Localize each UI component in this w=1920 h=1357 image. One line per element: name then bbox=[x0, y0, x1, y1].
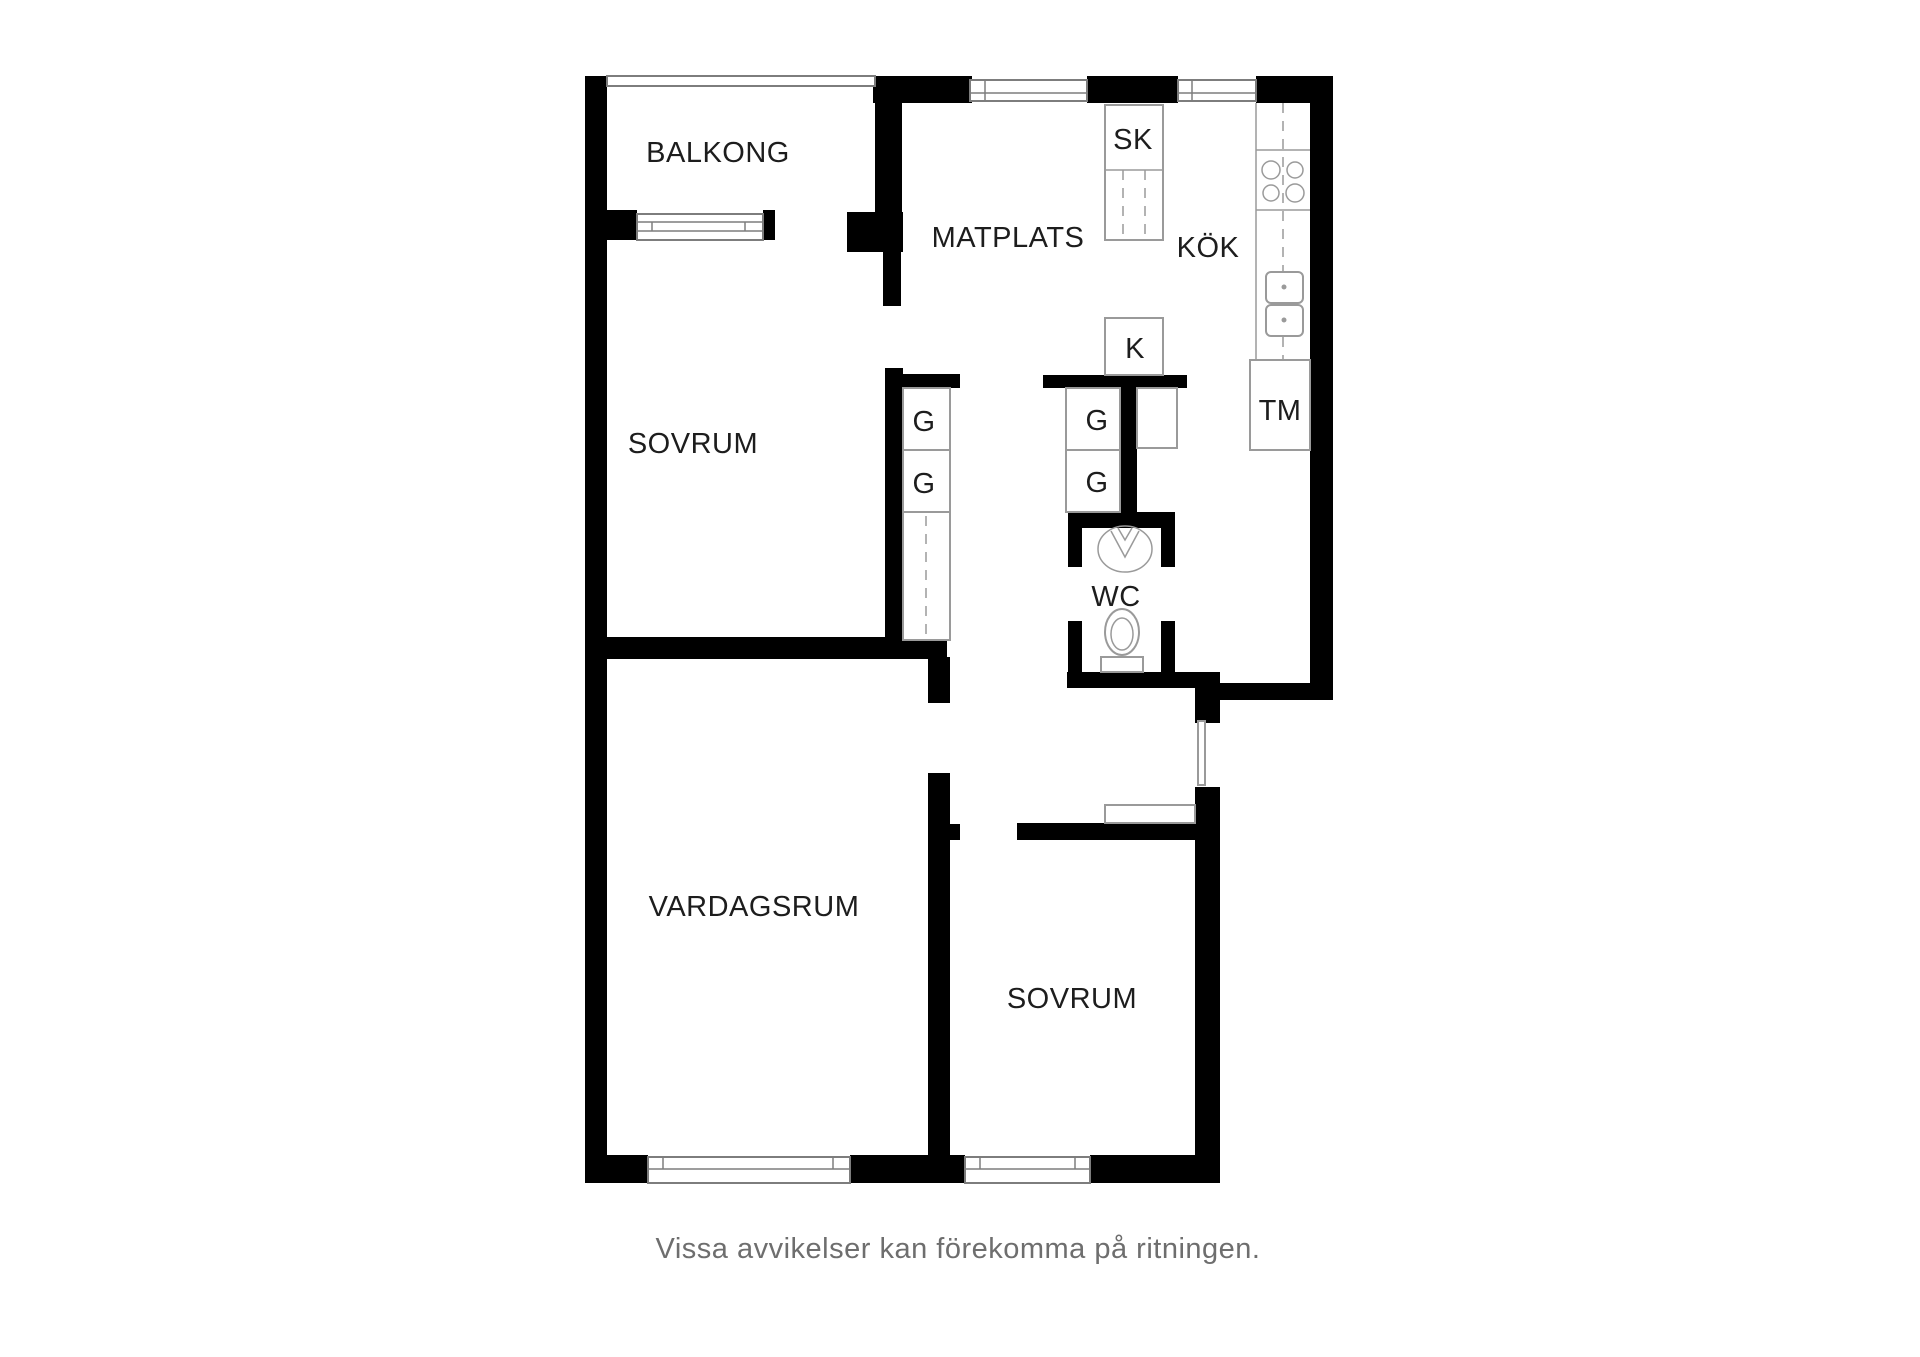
window-top-2 bbox=[1178, 80, 1256, 101]
stove-burner-icon bbox=[1263, 185, 1279, 201]
wall-sovrum2-north bbox=[1017, 823, 1195, 840]
wardrobe-hall-open-cell bbox=[1137, 388, 1177, 448]
hall-shelf bbox=[1105, 805, 1195, 823]
toilet-tank bbox=[1101, 657, 1143, 672]
wall-bottom-segment-b bbox=[850, 1155, 965, 1183]
sink-drain-2 bbox=[1282, 318, 1287, 323]
wall-vardagsrum-east-upper bbox=[928, 657, 950, 703]
stove-burner-icon bbox=[1286, 184, 1304, 202]
wall-wc-east-lower bbox=[1161, 621, 1175, 673]
wall-closet2-cap bbox=[1043, 375, 1187, 388]
toilet-bowl bbox=[1105, 609, 1139, 655]
wall-bottom-corner bbox=[1090, 1155, 1220, 1183]
room-label-matplats: MATPLATS bbox=[932, 222, 1085, 254]
room-label-wc: WC bbox=[1091, 581, 1140, 613]
fixture-label-sk: SK bbox=[1113, 124, 1153, 156]
stove-burner-icon bbox=[1287, 162, 1303, 178]
room-label-sovrum-bottom: SOVRUM bbox=[1007, 983, 1137, 1015]
sink-drain-1 bbox=[1282, 285, 1287, 290]
fixture-label-k: K bbox=[1125, 333, 1145, 365]
fixture-label-g-sovrum-1: G bbox=[912, 406, 935, 438]
wall-wc-east-upper bbox=[1161, 528, 1175, 567]
toilet bbox=[1101, 609, 1143, 672]
wall-sovrum-east-stub bbox=[883, 252, 901, 306]
wall-balcony-door-block bbox=[847, 212, 903, 252]
window-balcony bbox=[637, 214, 763, 240]
room-label-kok: KÖK bbox=[1177, 232, 1240, 264]
fixture-label-g-hall-2: G bbox=[1085, 467, 1108, 499]
room-label-sovrum-top: SOVRUM bbox=[628, 428, 758, 460]
wall-top-segment-b bbox=[1087, 76, 1178, 103]
window-bottom-2 bbox=[965, 1157, 1090, 1183]
wall-vardagsrum-east-lower bbox=[928, 773, 950, 1155]
washbasin-tap bbox=[1118, 528, 1132, 540]
wall-outer-left bbox=[585, 76, 607, 1183]
kitchen-sink bbox=[1266, 272, 1303, 336]
entrance-door-leaf bbox=[1198, 721, 1205, 785]
disclaimer-caption: Vissa avvikelser kan förekomma på ritnin… bbox=[656, 1233, 1261, 1265]
wall-balcony-window-block bbox=[585, 210, 637, 240]
stove-burner-icon bbox=[1262, 161, 1280, 179]
wall-wc-west-upper bbox=[1068, 528, 1082, 567]
washbasin-bowl bbox=[1098, 526, 1152, 572]
window-top-1 bbox=[970, 80, 1087, 101]
wall-entry-lower bbox=[1195, 787, 1220, 1183]
fixture-label-tm: TM bbox=[1259, 395, 1302, 427]
wall-sovrum2-door-nub bbox=[948, 824, 960, 840]
fixture-label-g-hall-1: G bbox=[1085, 405, 1108, 437]
fixtures bbox=[903, 103, 1310, 823]
wall-balcony-window-cap bbox=[763, 210, 775, 240]
wall-step-right bbox=[1210, 683, 1333, 700]
wall-closet1-cap bbox=[903, 374, 960, 388]
window-bottom-1 bbox=[648, 1157, 850, 1183]
fixture-label-g-sovrum-2: G bbox=[912, 468, 935, 500]
balcony-railing bbox=[607, 76, 875, 86]
washbasin bbox=[1098, 526, 1152, 572]
washbasin-detail bbox=[1111, 531, 1139, 557]
wall-balcony-divider bbox=[875, 76, 902, 216]
room-label-balkong: BALKONG bbox=[646, 137, 790, 169]
floor-plan-page: BALKONG SOVRUM MATPLATS KÖK WC VARDAGSRU… bbox=[0, 0, 1920, 1357]
wall-sovrum-south bbox=[585, 637, 947, 659]
wall-sovrum-east bbox=[885, 368, 903, 642]
wall-wc-west-lower bbox=[1068, 621, 1082, 673]
floor-plan-drawing: BALKONG SOVRUM MATPLATS KÖK WC VARDAGSRU… bbox=[0, 0, 1920, 1357]
room-label-vardagsrum: VARDAGSRUM bbox=[649, 891, 860, 923]
wall-closet2-divider bbox=[1120, 388, 1137, 512]
wall-bottom-segment-a bbox=[585, 1155, 648, 1183]
wall-outer-right bbox=[1310, 76, 1333, 700]
